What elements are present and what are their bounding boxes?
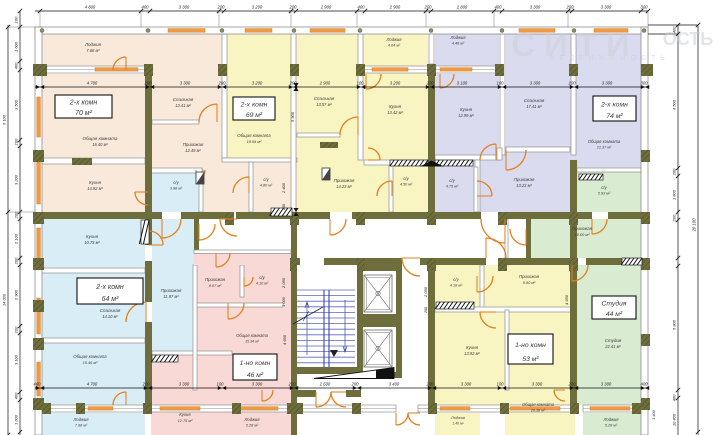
svg-text:4.10 м²: 4.10 м²	[256, 282, 269, 286]
svg-text:Лоджия: Лоджия	[244, 417, 261, 422]
svg-text:3 300: 3 300	[530, 81, 541, 86]
svg-text:4.64 м²: 4.64 м²	[388, 44, 401, 48]
svg-text:100: 100	[497, 382, 505, 387]
svg-text:Лоджия: Лоджия	[386, 37, 403, 42]
svg-text:64 м²: 64 м²	[102, 296, 120, 303]
svg-text:3 400: 3 400	[389, 382, 400, 387]
svg-text:100: 100	[14, 326, 19, 333]
svg-text:Спальная: Спальная	[314, 96, 335, 101]
svg-text:2 900: 2 900	[320, 5, 332, 10]
svg-text:3 200: 3 200	[252, 5, 263, 10]
svg-text:53 м²: 53 м²	[522, 356, 539, 363]
svg-text:8.07 м²: 8.07 м²	[209, 283, 222, 288]
svg-text:15.34 м²: 15.34 м²	[245, 340, 260, 344]
svg-text:с/у: с/у	[453, 277, 459, 282]
svg-text:13.57 м²: 13.57 м²	[316, 102, 332, 107]
svg-text:Кухня: Кухня	[389, 104, 402, 109]
svg-text:6 100: 6 100	[2, 114, 7, 125]
svg-text:400: 400	[14, 392, 19, 399]
svg-text:2-х комн: 2-х комн	[600, 102, 628, 109]
svg-text:4.18 м²: 4.18 м²	[450, 284, 463, 288]
svg-text:Прихожая: Прихожая	[519, 274, 540, 279]
svg-text:6 500: 6 500	[672, 99, 677, 110]
svg-text:3 300: 3 300	[530, 5, 541, 10]
svg-text:9.90 м²: 9.90 м²	[523, 280, 536, 285]
svg-text:200: 200	[351, 382, 360, 387]
svg-text:3 100: 3 100	[457, 81, 468, 86]
svg-text:20.38 м²: 20.38 м²	[530, 409, 546, 413]
svg-text:7.68 м²: 7.68 м²	[86, 48, 100, 53]
svg-text:13.42 м²: 13.42 м²	[387, 110, 403, 115]
svg-text:Спальная: Спальная	[100, 308, 121, 313]
svg-text:46 м²: 46 м²	[247, 372, 264, 379]
svg-text:200: 200	[144, 81, 153, 86]
svg-text:2 050: 2 050	[423, 286, 428, 298]
svg-text:100: 100	[14, 16, 19, 23]
svg-text:2 900: 2 900	[389, 5, 401, 10]
svg-text:69 м²: 69 м²	[246, 112, 263, 119]
svg-text:Общая комната: Общая комната	[522, 402, 555, 407]
svg-text:Общая комната: Общая комната	[83, 136, 118, 141]
svg-text:4 800: 4 800	[85, 5, 96, 10]
svg-text:13.41 м²: 13.41 м²	[175, 103, 191, 108]
svg-text:Прихожая: Прихожая	[572, 226, 593, 231]
svg-text:400: 400	[495, 5, 503, 10]
svg-text:400: 400	[142, 5, 150, 10]
svg-text:Спальная: Спальная	[173, 97, 194, 102]
svg-text:2 100: 2 100	[14, 233, 19, 245]
svg-text:1 000: 1 000	[282, 296, 286, 306]
svg-text:3 200: 3 200	[390, 81, 401, 86]
svg-text:Лоджия: Лоджия	[603, 417, 620, 422]
svg-text:11.97 м²: 11.97 м²	[163, 294, 179, 299]
svg-text:100: 100	[497, 81, 505, 86]
svg-text:2 800: 2 800	[456, 5, 468, 10]
svg-text:44 м²: 44 м²	[606, 311, 623, 318]
svg-text:Кухня: Кухня	[460, 107, 473, 112]
svg-text:70 м²: 70 м²	[75, 110, 93, 117]
svg-text:2 400: 2 400	[281, 182, 286, 194]
svg-text:3 300: 3 300	[532, 382, 543, 387]
svg-text:14.10 м²: 14.10 м²	[102, 314, 118, 319]
svg-text:200: 200	[566, 5, 575, 10]
svg-text:14.92 м²: 14.92 м²	[87, 186, 103, 191]
svg-text:Лоджия: Лоджия	[84, 42, 102, 47]
svg-text:3 200: 3 200	[252, 81, 263, 86]
svg-text:Кухня: Кухня	[179, 412, 191, 417]
svg-text:200: 200	[218, 81, 227, 86]
svg-text:3 300: 3 300	[179, 5, 190, 10]
svg-text:20 100: 20 100	[692, 218, 697, 232]
svg-text:300: 300	[641, 5, 649, 10]
svg-text:2 050: 2 050	[281, 277, 286, 289]
svg-text:100: 100	[14, 138, 19, 145]
svg-text:12.99 м²: 12.99 м²	[458, 113, 474, 118]
svg-text:с/у: с/у	[403, 176, 409, 181]
svg-text:4.48 м²: 4.48 м²	[452, 42, 465, 46]
svg-text:Прихожая: Прихожая	[161, 288, 182, 293]
svg-text:Прихожая: Прихожая	[183, 142, 204, 147]
svg-text:Кухня: Кухня	[466, 345, 479, 350]
svg-text:200: 200	[568, 382, 577, 387]
svg-text:3 300: 3 300	[252, 382, 263, 387]
svg-text:4.50 м²: 4.50 м²	[400, 183, 413, 187]
svg-text:с/у: с/у	[601, 185, 607, 190]
svg-text:3 300: 3 300	[601, 5, 612, 10]
svg-text:4 650: 4 650	[282, 334, 287, 345]
svg-text:1 800: 1 800	[672, 189, 677, 200]
svg-text:6 800: 6 800	[672, 319, 677, 330]
svg-text:5.93 м²: 5.93 м²	[598, 192, 611, 196]
svg-text:12.49 м²: 12.49 м²	[185, 148, 201, 153]
svg-text:200: 200	[424, 307, 428, 314]
svg-text:Кухня: Кухня	[89, 180, 102, 185]
svg-text:с/у: с/у	[449, 178, 455, 183]
svg-text:12.75 м²: 12.75 м²	[178, 418, 193, 423]
svg-text:1 600: 1 600	[14, 414, 19, 425]
svg-text:Прихожая: Прихожая	[514, 177, 535, 182]
svg-text:с/у: с/у	[259, 275, 265, 280]
svg-text:Н Е Д В И Ж И М О С Т Ь: Н Е Д В И Ж И М О С Т Ь	[550, 55, 667, 62]
svg-text:1-но комн: 1-но комн	[515, 342, 546, 349]
svg-text:200: 200	[14, 257, 19, 265]
svg-text:400: 400	[34, 382, 42, 387]
svg-text:3 100: 3 100	[14, 354, 19, 365]
svg-text:200: 200	[672, 214, 677, 222]
svg-text:1 600: 1 600	[14, 41, 19, 52]
svg-text:1 400: 1 400	[652, 409, 656, 419]
svg-text:с/у: с/у	[263, 177, 269, 182]
svg-text:3 300: 3 300	[461, 382, 472, 387]
svg-text:200: 200	[426, 81, 435, 86]
svg-text:2-х комн: 2-х комн	[240, 102, 268, 109]
svg-text:3 300: 3 300	[180, 81, 191, 86]
svg-text:100: 100	[357, 81, 365, 86]
svg-text:15.46 м²: 15.46 м²	[83, 360, 98, 365]
svg-text:400: 400	[672, 394, 677, 401]
svg-text:200: 200	[289, 5, 298, 10]
svg-text:5.28 м²: 5.28 м²	[246, 424, 259, 428]
svg-text:4 700: 4 700	[87, 81, 98, 86]
svg-text:Общая комната: Общая комната	[73, 354, 107, 359]
svg-text:21.37 м²: 21.37 м²	[596, 146, 612, 150]
svg-text:13.92 м²: 13.92 м²	[464, 351, 480, 356]
svg-text:10 400: 10 400	[672, 413, 677, 426]
svg-text:Студия: Студия	[605, 338, 622, 343]
svg-text:4.80 м²: 4.80 м²	[260, 184, 273, 188]
svg-text:200: 200	[288, 382, 297, 387]
svg-text:200: 200	[282, 204, 286, 211]
svg-text:5.28 м²: 5.28 м²	[605, 424, 618, 428]
svg-text:200: 200	[424, 5, 433, 10]
svg-text:2 900: 2 900	[14, 289, 19, 301]
svg-text:300: 300	[641, 81, 649, 86]
svg-text:Лоджия: Лоджия	[450, 415, 465, 420]
svg-text:Кухня: Кухня	[86, 234, 99, 239]
svg-text:3 200: 3 200	[14, 174, 19, 185]
svg-text:4.75 м²: 4.75 м²	[446, 185, 459, 189]
svg-text:Лоджия: Лоджия	[73, 417, 90, 422]
svg-text:1-но комн: 1-но комн	[240, 360, 271, 367]
svg-text:16.40 м²: 16.40 м²	[92, 142, 108, 147]
svg-text:14.23 м²: 14.23 м²	[336, 184, 352, 189]
svg-text:5 900: 5 900	[290, 111, 295, 122]
svg-text:3 300: 3 300	[601, 382, 612, 387]
svg-text:1.40 м²: 1.40 м²	[452, 421, 464, 425]
svg-text:ОСТЬ: ОСТЬ	[663, 29, 714, 49]
svg-text:Лоджия: Лоджия	[450, 35, 467, 40]
svg-text:200: 200	[426, 382, 435, 387]
svg-text:200: 200	[672, 168, 677, 176]
svg-text:3.98 м²: 3.98 м²	[170, 187, 183, 191]
svg-text:с/у: с/у	[173, 180, 179, 185]
svg-text:Спальная: Спальная	[524, 98, 545, 103]
svg-text:Общая комната: Общая комната	[588, 139, 621, 144]
svg-text:18.84 м²: 18.84 м²	[247, 139, 262, 144]
svg-text:200: 200	[217, 5, 226, 10]
svg-text:2 600: 2 600	[319, 382, 331, 387]
svg-text:3 300: 3 300	[602, 81, 613, 86]
svg-text:200: 200	[142, 382, 151, 387]
svg-text:Общая комната: Общая комната	[237, 133, 271, 138]
svg-text:Общая комната: Общая комната	[236, 333, 269, 338]
svg-text:74 м²: 74 м²	[606, 113, 623, 120]
svg-text:200: 200	[568, 81, 577, 86]
svg-text:10.00 м²: 10.00 м²	[575, 232, 590, 237]
svg-text:2-х комн: 2-х комн	[69, 100, 98, 107]
svg-text:10.73 м²: 10.73 м²	[84, 240, 100, 245]
svg-text:13.23 м²: 13.23 м²	[516, 183, 532, 188]
svg-text:4 700: 4 700	[87, 382, 98, 387]
svg-text:400: 400	[641, 382, 649, 387]
svg-text:22.41 м²: 22.41 м²	[604, 344, 621, 349]
svg-text:100: 100	[217, 382, 225, 387]
svg-text:7.68 м²: 7.68 м²	[75, 424, 88, 428]
svg-text:Прихожая: Прихожая	[205, 277, 226, 282]
svg-text:3 300: 3 300	[179, 382, 190, 387]
svg-text:400: 400	[358, 5, 366, 10]
svg-text:Прихожая: Прихожая	[334, 178, 355, 183]
svg-text:3 500: 3 500	[14, 99, 19, 110]
svg-text:17.41 м²: 17.41 м²	[526, 104, 542, 109]
svg-text:Студия: Студия	[602, 300, 627, 308]
svg-text:4 650: 4 650	[564, 294, 569, 305]
svg-text:14 000: 14 000	[2, 293, 7, 306]
svg-text:2-х комн: 2-х комн	[95, 284, 124, 291]
svg-text:2 900: 2 900	[319, 81, 331, 86]
